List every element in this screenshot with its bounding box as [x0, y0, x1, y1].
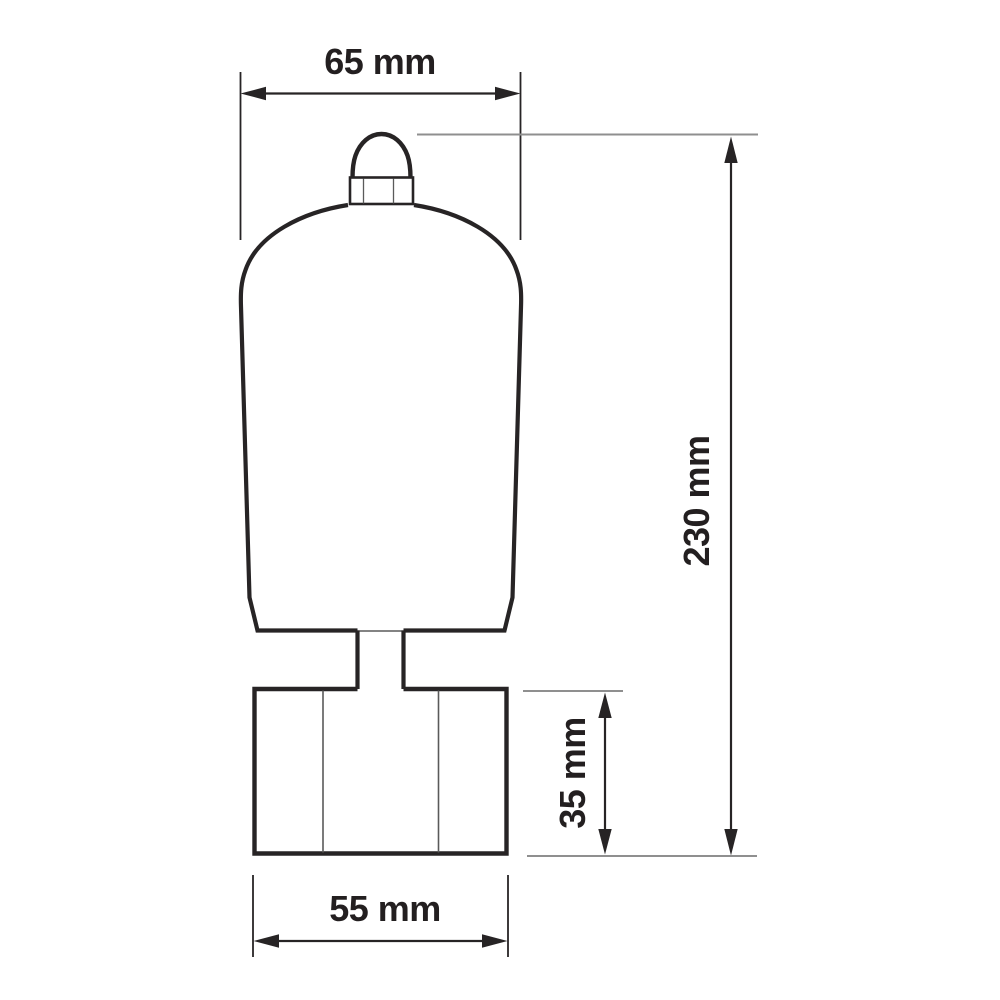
dimension-label-height-total: 230 mm: [679, 435, 715, 566]
arrowhead-right-icon: [495, 87, 521, 100]
product-outline: [241, 134, 521, 854]
hex-nut: [350, 178, 413, 205]
dimension-label-height-base: 35 mm: [555, 717, 591, 829]
dimension-drawing: 65 mm 230 mm 35 mm 55 mm: [0, 0, 1000, 1000]
page: { "title": "Product dimension drawing", …: [0, 0, 1000, 1000]
arrowhead-right-icon: [482, 934, 508, 947]
arrowhead-down-icon: [724, 829, 737, 856]
drawing-canvas: [0, 0, 1000, 1000]
dimension-label-width-top: 65 mm: [324, 44, 436, 80]
bottle-body-left-outline: [241, 205, 358, 631]
arrowhead-left-icon: [254, 934, 280, 947]
arrowhead-up-icon: [598, 693, 611, 719]
dimension-label-width-base: 55 mm: [329, 891, 441, 927]
cap-dome: [353, 134, 411, 178]
bottle-body-right-outline: [404, 205, 522, 631]
arrowhead-down-icon: [598, 829, 611, 855]
dimension-width-top: [241, 72, 521, 240]
arrowhead-up-icon: [724, 137, 737, 164]
arrowhead-left-icon: [241, 87, 267, 100]
base-cylinder: [255, 689, 507, 854]
